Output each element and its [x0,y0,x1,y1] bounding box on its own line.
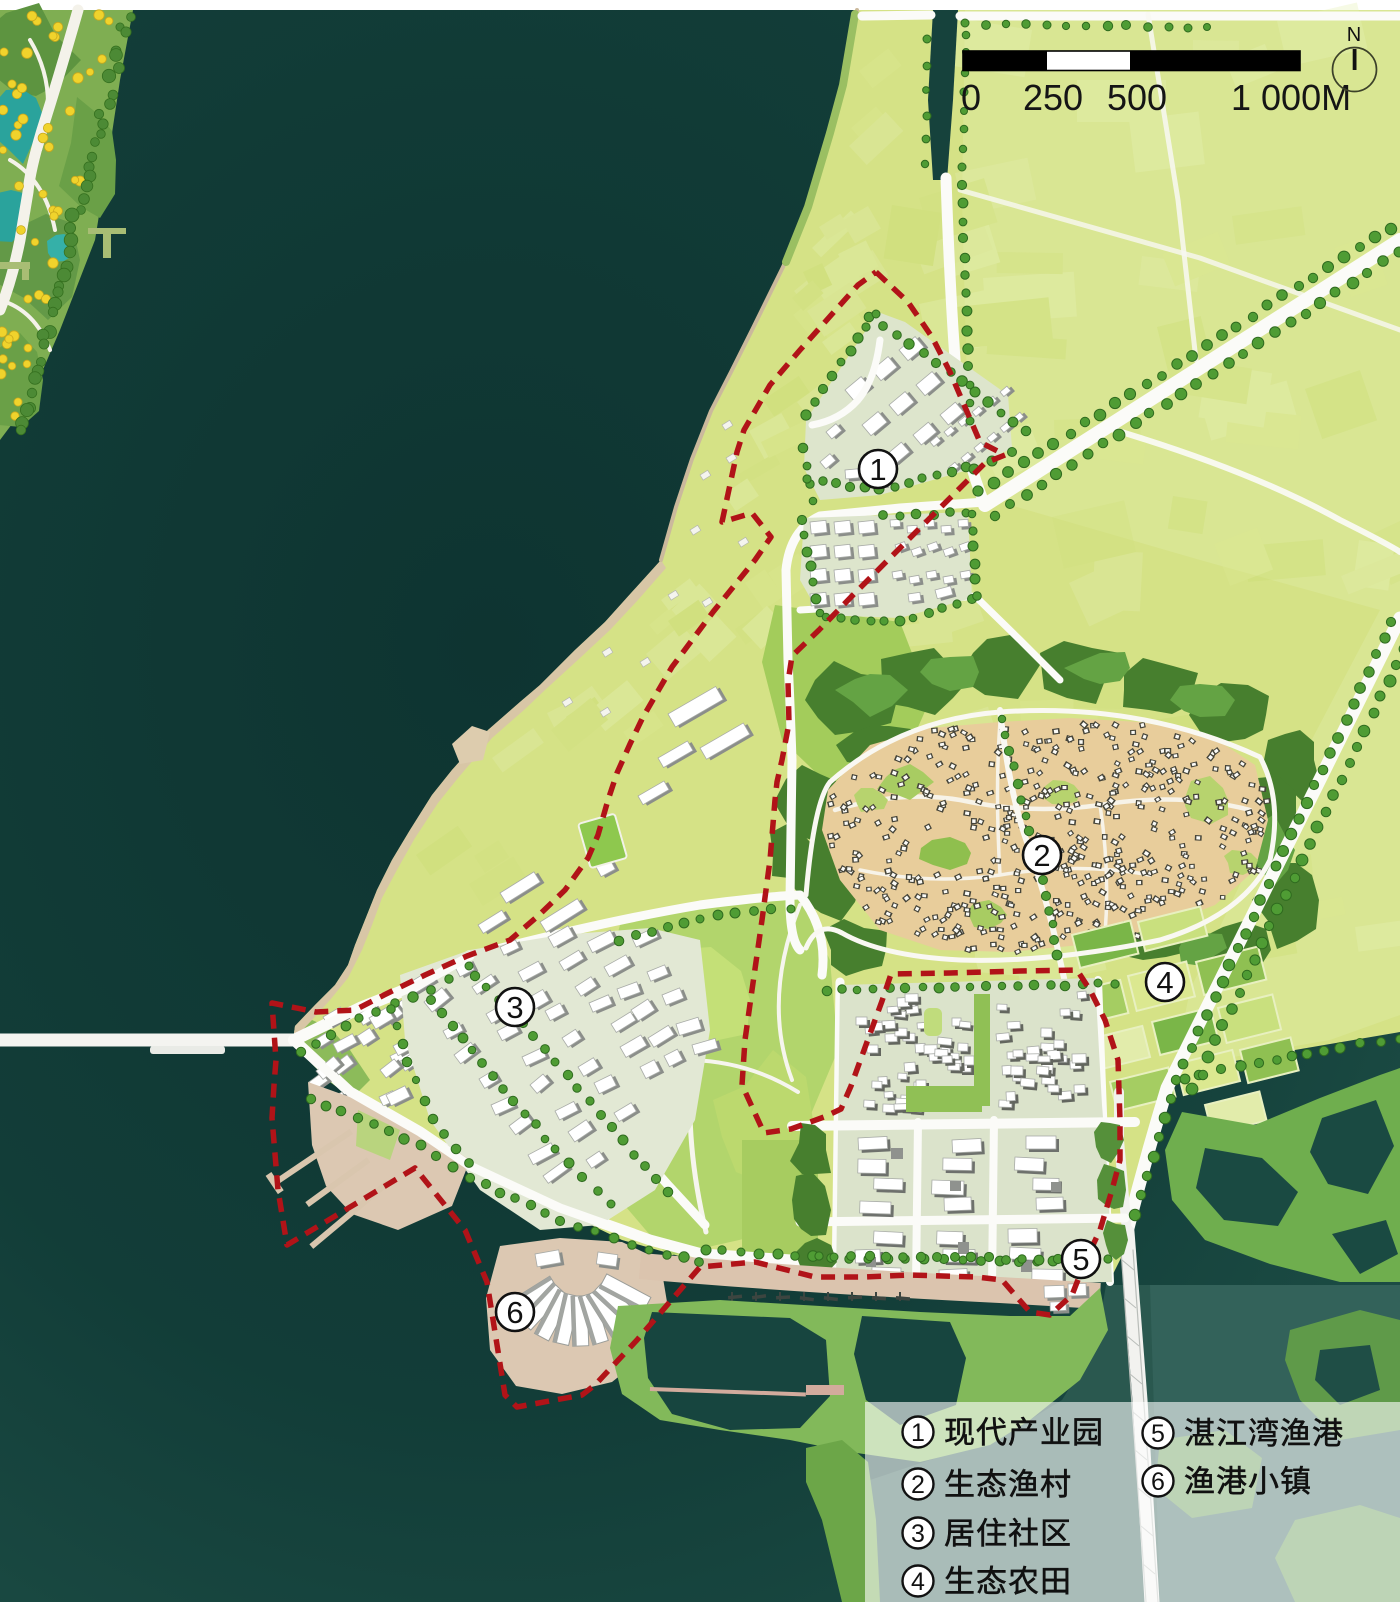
svg-text:2: 2 [911,1471,925,1499]
svg-text:5: 5 [1151,1420,1165,1448]
svg-text:4: 4 [911,1568,925,1596]
svg-text:1: 1 [911,1419,925,1447]
svg-text:5: 5 [1072,1242,1089,1277]
svg-text:4: 4 [1156,965,1173,1000]
svg-text:3: 3 [506,990,523,1025]
svg-text:250: 250 [1023,77,1083,118]
svg-text:2: 2 [1033,838,1050,873]
svg-text:6: 6 [506,1295,523,1330]
svg-text:3: 3 [911,1520,925,1548]
svg-text:1 000M: 1 000M [1231,77,1351,118]
svg-text:500: 500 [1107,77,1167,118]
svg-text:N: N [1347,24,1361,46]
svg-text:1: 1 [869,452,886,487]
svg-text:0: 0 [961,77,981,118]
svg-text:6: 6 [1151,1468,1165,1496]
